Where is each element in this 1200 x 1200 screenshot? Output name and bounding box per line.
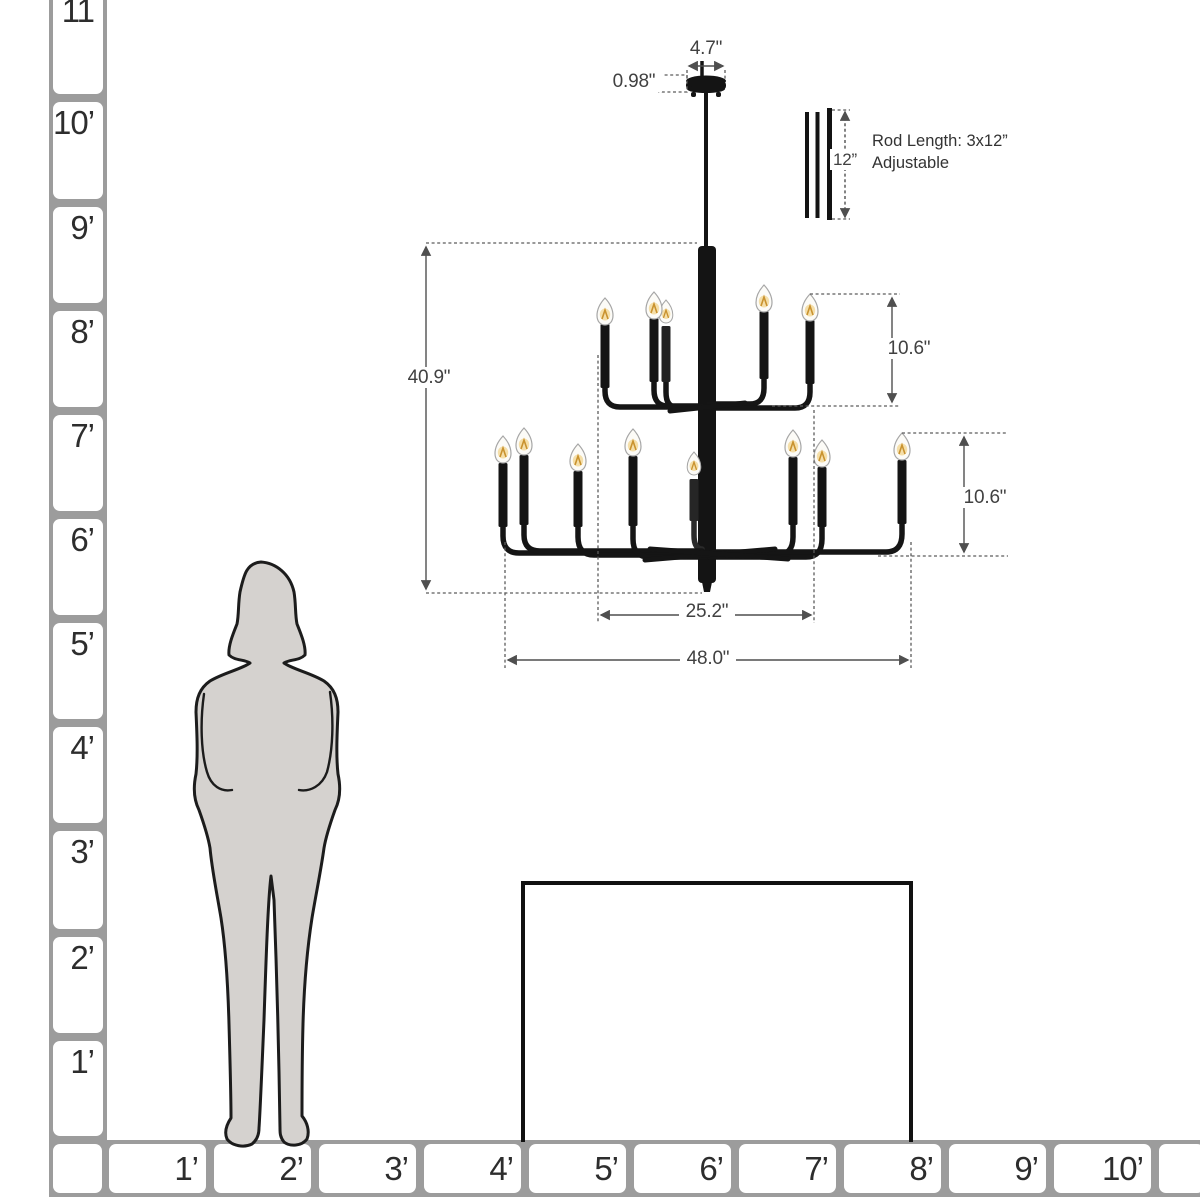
diagram-canvas	[0, 0, 1200, 1200]
rods-icon	[805, 108, 832, 220]
chandelier-drawing	[495, 61, 910, 592]
column-finial	[702, 582, 712, 592]
canopy-thickness-label: 0.98"	[606, 71, 662, 92]
person-silhouette	[194, 562, 339, 1146]
rod-note: Rod Length: 3x12” Adjustable	[872, 130, 1008, 174]
rod-note-line1: Rod Length: 3x12”	[872, 130, 1008, 152]
dining-table-outline	[523, 883, 911, 1142]
chandelier-column	[698, 246, 716, 583]
bottom-tier-height-label: 10.6"	[958, 487, 1012, 508]
bottom-tier-width-label: 48.0"	[680, 648, 736, 669]
rod-length-label: 12”	[830, 149, 860, 170]
canopy-width-label: 4.7"	[680, 38, 732, 59]
rod-note-line2: Adjustable	[872, 152, 1008, 174]
top-tier-height-label: 10.6"	[882, 338, 936, 359]
top-tier-width-label: 25.2"	[679, 601, 735, 622]
overall-height-label: 40.9"	[404, 367, 454, 388]
hanging-rod	[704, 92, 708, 246]
dimension-diagram: 11 10’ 9’ 8’ 7’ 6’ 5’ 4’ 3’ 2’ 1’ 1’ 2’ …	[0, 0, 1200, 1200]
